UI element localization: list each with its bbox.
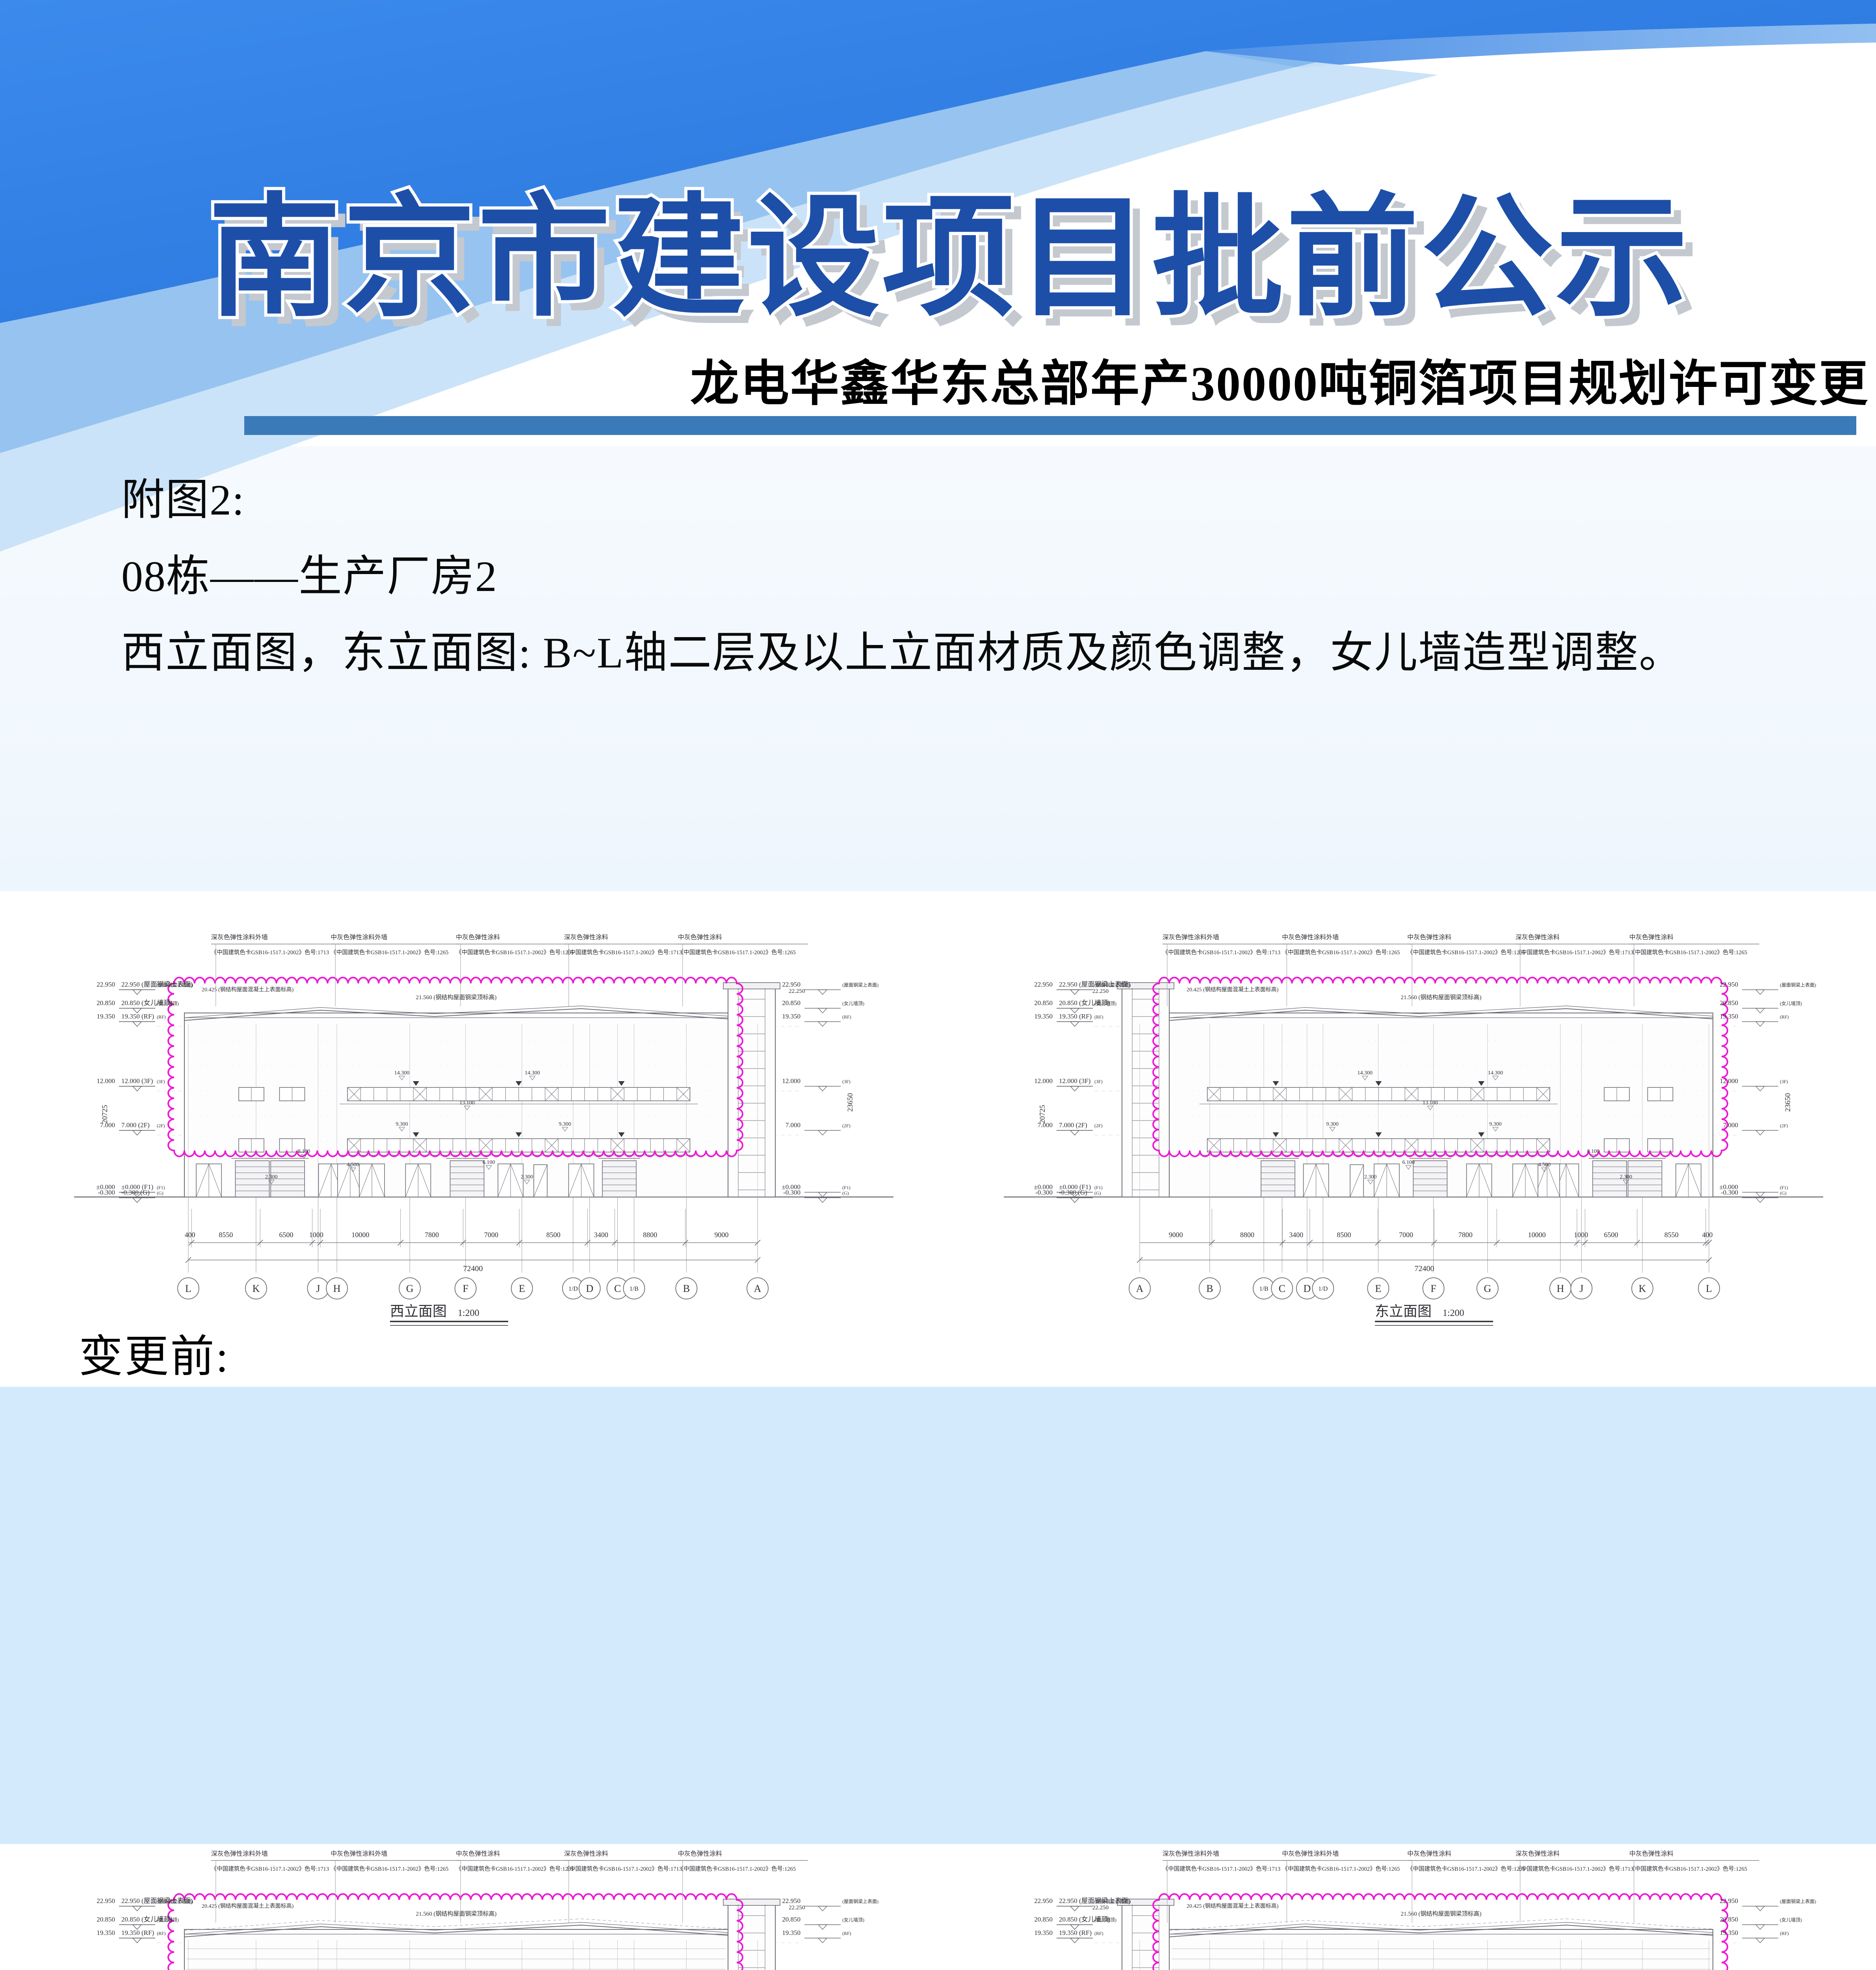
svg-text:(2F): (2F): [842, 1123, 851, 1128]
svg-text:6500: 6500: [1604, 1231, 1618, 1239]
svg-text:19.350 (RF): 19.350 (RF): [121, 1013, 154, 1020]
svg-text:20.425 (钢结构屋面混凝土上表面标高): 20.425 (钢结构屋面混凝土上表面标高): [202, 1903, 294, 1909]
svg-text:14.300: 14.300: [525, 1070, 540, 1076]
svg-text:(G): (G): [842, 1190, 849, 1196]
svg-text:8500: 8500: [1337, 1231, 1351, 1239]
svg-text:(G): (G): [1094, 1190, 1101, 1196]
section-divider-band: [0, 1387, 1876, 1844]
svg-text:H: H: [1557, 1283, 1564, 1294]
svg-text:6500: 6500: [279, 1231, 293, 1239]
svg-text:19.350 (RF): 19.350 (RF): [121, 1929, 154, 1937]
svg-text:《中国建筑色卡GSB16-1517.1-2002》色号:12: 《中国建筑色卡GSB16-1517.1-2002》色号:1265: [1407, 1866, 1525, 1872]
svg-text:(RF): (RF): [1780, 1931, 1789, 1936]
svg-text:(F1): (F1): [1094, 1185, 1103, 1190]
svg-text:14.300: 14.300: [1488, 1070, 1503, 1076]
svg-text:8550: 8550: [219, 1231, 233, 1239]
svg-text:(屋面钢梁上表面): (屋面钢梁上表面): [157, 982, 193, 988]
svg-text:(女儿墙顶): (女儿墙顶): [157, 1917, 179, 1923]
svg-text:20725: 20725: [101, 1105, 109, 1124]
svg-text:中灰色弹性涂料: 中灰色弹性涂料: [678, 1850, 722, 1857]
elevation-canvas-west-before: 22.950 (屋面钢梁上表面)20.850 (女儿墙顶)19.350 (RF)…: [50, 894, 917, 1335]
svg-text:72400: 72400: [1415, 1264, 1434, 1273]
svg-text:L: L: [1706, 1283, 1712, 1294]
svg-text:12.000: 12.000: [97, 1077, 115, 1085]
svg-text:20.850: 20.850: [782, 999, 801, 1007]
svg-text:4.500: 4.500: [1538, 1162, 1551, 1168]
svg-text:19.350: 19.350: [97, 1929, 115, 1937]
svg-text:19.350: 19.350: [782, 1929, 801, 1937]
svg-text:19.350 (RF): 19.350 (RF): [1059, 1929, 1092, 1937]
svg-text:G: G: [406, 1283, 414, 1294]
elevation-canvas-west-after: 22.950 (屋面钢梁上表面)20.850 (女儿墙顶)19.350 (RF)…: [50, 1810, 917, 1970]
svg-text:8500: 8500: [546, 1231, 561, 1239]
svg-text:12.000: 12.000: [1034, 1077, 1053, 1085]
svg-text:2.300: 2.300: [521, 1174, 533, 1180]
svg-text:400: 400: [1702, 1231, 1713, 1239]
svg-text:《中国建筑色卡GSB16-1517.1-2002》色号:17: 《中国建筑色卡GSB16-1517.1-2002》色号:1713: [564, 949, 682, 956]
svg-text:H: H: [333, 1283, 341, 1294]
svg-text:《中国建筑色卡GSB16-1517.1-2002》色号:12: 《中国建筑色卡GSB16-1517.1-2002》色号:1265: [1629, 949, 1747, 956]
svg-text:L: L: [185, 1283, 191, 1294]
svg-text:深灰色弹性涂料: 深灰色弹性涂料: [564, 934, 608, 941]
svg-text:3400: 3400: [594, 1231, 608, 1239]
svg-text:10000: 10000: [351, 1231, 369, 1239]
elevation-drawing-east-after: 22.950 (屋面钢梁上表面)20.850 (女儿墙顶)19.350 (RF)…: [980, 1810, 1847, 1970]
svg-text:(3F): (3F): [157, 1079, 165, 1084]
svg-text:8550: 8550: [1664, 1231, 1679, 1239]
svg-text:深灰色弹性涂料外墙: 深灰色弹性涂料外墙: [1163, 1850, 1219, 1857]
svg-text:深灰色弹性涂料: 深灰色弹性涂料: [564, 1850, 608, 1857]
svg-text:400: 400: [185, 1231, 195, 1239]
svg-text:中灰色弹性涂料外墙: 中灰色弹性涂料外墙: [1282, 1850, 1339, 1857]
svg-text:《中国建筑色卡GSB16-1517.1-2002》色号:12: 《中国建筑色卡GSB16-1517.1-2002》色号:1265: [678, 949, 796, 956]
svg-text:(2F): (2F): [157, 1123, 165, 1128]
poster-subtitle: 龙电华鑫华东总部年产30000吨铜箔项目规划许可变更: [690, 344, 1869, 414]
elevation-drawing-west-after: 22.950 (屋面钢梁上表面)20.850 (女儿墙顶)19.350 (RF)…: [50, 1810, 917, 1970]
svg-text:中灰色弹性涂料: 中灰色弹性涂料: [678, 934, 722, 941]
svg-text:《中国建筑色卡GSB16-1517.1-2002》色号:17: 《中国建筑色卡GSB16-1517.1-2002》色号:1713: [1516, 949, 1633, 956]
svg-text:22.250: 22.250: [1092, 1905, 1109, 1911]
svg-text:22.950: 22.950: [1720, 1897, 1738, 1905]
svg-text:(女儿墙顶): (女儿墙顶): [1780, 1000, 1802, 1006]
svg-text:7000: 7000: [1399, 1231, 1413, 1239]
svg-text:20.850: 20.850: [97, 999, 115, 1007]
svg-text:中灰色弹性涂料: 中灰色弹性涂料: [1407, 1850, 1451, 1857]
svg-text:D: D: [586, 1283, 593, 1294]
poster-page: 南京市建设项目批前公示 南京市建设项目批前公示 龙电华鑫华东总部年产30000吨…: [0, 0, 1876, 1970]
svg-text:14.300: 14.300: [394, 1070, 410, 1076]
svg-text:20725: 20725: [1038, 1105, 1047, 1124]
svg-text:20.850: 20.850: [1034, 1916, 1053, 1923]
svg-text:(RF): (RF): [842, 1014, 851, 1020]
svg-text:22.950: 22.950: [97, 981, 115, 988]
svg-text:《中国建筑色卡GSB16-1517.1-2002》色号:17: 《中国建筑色卡GSB16-1517.1-2002》色号:1713: [211, 949, 329, 956]
svg-text:(3F): (3F): [1094, 1079, 1103, 1084]
svg-text:(F1): (F1): [842, 1185, 851, 1190]
svg-text:(G): (G): [1780, 1190, 1787, 1196]
svg-text:19.350: 19.350: [1720, 1929, 1738, 1937]
svg-text:(RF): (RF): [842, 1931, 851, 1936]
svg-text:(RF): (RF): [1094, 1014, 1103, 1020]
svg-text:19.350: 19.350: [97, 1013, 115, 1020]
svg-text:20.425 (钢结构屋面混凝土上表面标高): 20.425 (钢结构屋面混凝土上表面标高): [202, 986, 294, 993]
svg-text:19.350: 19.350: [1720, 1013, 1738, 1020]
svg-text:深灰色弹性涂料外墙: 深灰色弹性涂料外墙: [211, 1850, 268, 1857]
svg-text:7800: 7800: [425, 1231, 439, 1239]
svg-text:A: A: [754, 1283, 762, 1294]
svg-text:《中国建筑色卡GSB16-1517.1-2002》色号:17: 《中国建筑色卡GSB16-1517.1-2002》色号:1713: [1163, 949, 1280, 956]
svg-text:《中国建筑色卡GSB16-1517.1-2002》色号:12: 《中国建筑色卡GSB16-1517.1-2002》色号:1265: [1407, 949, 1525, 956]
svg-text:6.100: 6.100: [1402, 1160, 1415, 1165]
svg-text:中灰色弹性涂料: 中灰色弹性涂料: [1407, 934, 1451, 941]
svg-text:《中国建筑色卡GSB16-1517.1-2002》色号:12: 《中国建筑色卡GSB16-1517.1-2002》色号:1265: [678, 1866, 796, 1872]
svg-text:(屋面钢梁上表面): (屋面钢梁上表面): [842, 982, 879, 988]
svg-text:22.950: 22.950: [1034, 1897, 1053, 1905]
svg-text:20.850: 20.850: [1720, 1916, 1738, 1923]
svg-text:(RF): (RF): [157, 1014, 166, 1020]
svg-text:K: K: [253, 1283, 260, 1294]
svg-text:(2F): (2F): [1780, 1123, 1788, 1128]
svg-text:J: J: [316, 1283, 320, 1294]
svg-text:中灰色弹性涂料外墙: 中灰色弹性涂料外墙: [331, 1850, 387, 1857]
svg-text:1:200: 1:200: [1443, 1308, 1464, 1318]
svg-text:(女儿墙顶): (女儿墙顶): [1094, 1917, 1116, 1923]
intro-line-1: 附图2:: [121, 464, 245, 527]
svg-text:(女儿墙顶): (女儿墙顶): [842, 1917, 864, 1923]
svg-text:21.560 (钢结构屋面钢梁顶标高): 21.560 (钢结构屋面钢梁顶标高): [416, 1911, 497, 1917]
svg-text:20.850: 20.850: [782, 1916, 801, 1923]
svg-text:E: E: [519, 1283, 525, 1294]
svg-text:23650: 23650: [846, 1093, 854, 1112]
svg-text:1/D: 1/D: [1318, 1286, 1328, 1292]
svg-text:21.560 (钢结构屋面钢梁顶标高): 21.560 (钢结构屋面钢梁顶标高): [1401, 994, 1482, 1001]
svg-text:13.100: 13.100: [1423, 1100, 1438, 1106]
svg-text:19.350: 19.350: [782, 1013, 801, 1020]
svg-text:E: E: [1375, 1283, 1382, 1294]
svg-text:9.300: 9.300: [1326, 1121, 1339, 1127]
svg-text:《中国建筑色卡GSB16-1517.1-2002》色号:17: 《中国建筑色卡GSB16-1517.1-2002》色号:1713: [1516, 1866, 1633, 1872]
svg-text:F: F: [1430, 1283, 1436, 1294]
svg-text:19.350: 19.350: [1034, 1013, 1053, 1020]
svg-text:-0.300: -0.300: [98, 1189, 115, 1196]
svg-text:19.350 (RF): 19.350 (RF): [1059, 1013, 1092, 1020]
svg-text:(G): (G): [157, 1190, 163, 1196]
svg-text:3400: 3400: [1289, 1231, 1303, 1239]
svg-text:20.850: 20.850: [97, 1916, 115, 1923]
svg-text:1:200: 1:200: [458, 1308, 479, 1318]
svg-text:(F1): (F1): [1780, 1185, 1788, 1190]
svg-text:20.850: 20.850: [1034, 999, 1053, 1007]
svg-text:1/D: 1/D: [568, 1286, 578, 1292]
svg-text:7.000 (2F): 7.000 (2F): [1059, 1121, 1087, 1129]
svg-text:《中国建筑色卡GSB16-1517.1-2002》色号:12: 《中国建筑色卡GSB16-1517.1-2002》色号:1265: [331, 1866, 448, 1872]
svg-text:《中国建筑色卡GSB16-1517.1-2002》色号:17: 《中国建筑色卡GSB16-1517.1-2002》色号:1713: [564, 1866, 682, 1872]
svg-text:深灰色弹性涂料外墙: 深灰色弹性涂料外墙: [1163, 934, 1219, 941]
section-label-before: 变更前:: [79, 1321, 230, 1385]
svg-text:20.425 (钢结构屋面混凝土上表面标高): 20.425 (钢结构屋面混凝土上表面标高): [1187, 1903, 1279, 1909]
svg-text:东立面图: 东立面图: [1375, 1303, 1432, 1319]
svg-text:12.000: 12.000: [782, 1077, 801, 1085]
svg-text:-0.300: -0.300: [1035, 1189, 1053, 1196]
svg-text:9000: 9000: [714, 1231, 728, 1239]
svg-text:7.000: 7.000: [1723, 1121, 1738, 1129]
svg-text:《中国建筑色卡GSB16-1517.1-2002》色号:12: 《中国建筑色卡GSB16-1517.1-2002》色号:1265: [1629, 1866, 1747, 1872]
svg-text:22.950: 22.950: [782, 981, 801, 988]
svg-text:中灰色弹性涂料: 中灰色弹性涂料: [456, 1850, 500, 1857]
svg-text:22.950: 22.950: [782, 1897, 801, 1905]
svg-text:中灰色弹性涂料: 中灰色弹性涂料: [1629, 934, 1674, 941]
svg-text:22.250: 22.250: [789, 988, 805, 994]
svg-text:(RF): (RF): [1094, 1931, 1103, 1936]
svg-text:K: K: [1639, 1283, 1646, 1294]
svg-text:22.250: 22.250: [1092, 988, 1109, 994]
svg-text:(女儿墙顶): (女儿墙顶): [842, 1000, 864, 1006]
svg-text:(屋面钢梁上表面): (屋面钢梁上表面): [842, 1898, 879, 1904]
svg-text:23650: 23650: [1784, 1093, 1792, 1112]
svg-text:12.000 (3F): 12.000 (3F): [121, 1077, 153, 1085]
svg-text:C: C: [614, 1283, 621, 1294]
svg-text:14.300: 14.300: [1358, 1070, 1373, 1076]
svg-text:4.500: 4.500: [347, 1162, 359, 1168]
svg-text:《中国建筑色卡GSB16-1517.1-2002》色号:17: 《中国建筑色卡GSB16-1517.1-2002》色号:1713: [211, 1866, 329, 1872]
svg-text:(3F): (3F): [842, 1079, 851, 1084]
svg-text:12.000: 12.000: [1720, 1077, 1738, 1085]
elevation-canvas-east-after: 22.950 (屋面钢梁上表面)20.850 (女儿墙顶)19.350 (RF)…: [980, 1810, 1847, 1970]
elevation-drawing-east-before: 22.950 (屋面钢梁上表面)20.850 (女儿墙顶)19.350 (RF)…: [980, 894, 1847, 1335]
svg-text:19.350: 19.350: [1034, 1929, 1053, 1937]
svg-text:(屋面钢梁上表面): (屋面钢梁上表面): [157, 1898, 193, 1904]
poster-title: 南京市建设项目批前公示: [208, 186, 1690, 332]
svg-text:《中国建筑色卡GSB16-1517.1-2002》色号:12: 《中国建筑色卡GSB16-1517.1-2002》色号:1265: [331, 949, 448, 956]
svg-text:B: B: [683, 1283, 690, 1294]
svg-text:6.100: 6.100: [483, 1160, 495, 1165]
svg-text:22.950: 22.950: [1720, 981, 1738, 988]
svg-text:(RF): (RF): [1780, 1014, 1789, 1020]
intro-line-3: 西立面图，东立面图: B~L轴二层及以上立面材质及颜色调整，女儿墙造型调整。: [121, 617, 1683, 680]
svg-text:7800: 7800: [1458, 1231, 1473, 1239]
svg-text:20.850: 20.850: [1720, 999, 1738, 1007]
svg-text:《中国建筑色卡GSB16-1517.1-2002》色号:12: 《中国建筑色卡GSB16-1517.1-2002》色号:1265: [1282, 1866, 1400, 1872]
svg-text:J: J: [1579, 1283, 1583, 1294]
svg-text:(女儿墙顶): (女儿墙顶): [1094, 1000, 1116, 1006]
svg-text:8.100: 8.100: [298, 1149, 310, 1154]
elevation-canvas-east-before: 22.950 (屋面钢梁上表面)20.850 (女儿墙顶)19.350 (RF)…: [980, 894, 1847, 1335]
svg-text:12.000 (3F): 12.000 (3F): [1059, 1077, 1090, 1085]
svg-text:中灰色弹性涂料: 中灰色弹性涂料: [456, 934, 500, 941]
svg-text:(女儿墙顶): (女儿墙顶): [157, 1000, 179, 1006]
svg-text:72400: 72400: [463, 1264, 483, 1273]
svg-text:9.300: 9.300: [559, 1121, 571, 1127]
svg-text:(屋面钢梁上表面): (屋面钢梁上表面): [1094, 982, 1131, 988]
svg-text:《中国建筑色卡GSB16-1517.1-2002》色号:12: 《中国建筑色卡GSB16-1517.1-2002》色号:1265: [1282, 949, 1400, 956]
svg-text:20.425 (钢结构屋面混凝土上表面标高): 20.425 (钢结构屋面混凝土上表面标高): [1187, 986, 1279, 993]
svg-text:(3F): (3F): [1780, 1079, 1788, 1084]
svg-text:22.950: 22.950: [1034, 981, 1053, 988]
svg-text:B: B: [1206, 1283, 1213, 1294]
svg-text:8800: 8800: [1240, 1231, 1254, 1239]
elevation-drawing-west-before: 22.950 (屋面钢梁上表面)20.850 (女儿墙顶)19.350 (RF)…: [50, 894, 917, 1335]
svg-text:深灰色弹性涂料: 深灰色弹性涂料: [1516, 1850, 1560, 1857]
svg-text:1000: 1000: [309, 1231, 323, 1239]
svg-text:F: F: [462, 1283, 468, 1294]
svg-text:1000: 1000: [1574, 1231, 1588, 1239]
svg-text:2.300: 2.300: [265, 1174, 278, 1180]
svg-text:(屋面钢梁上表面): (屋面钢梁上表面): [1780, 982, 1816, 988]
svg-text:《中国建筑色卡GSB16-1517.1-2002》色号:12: 《中国建筑色卡GSB16-1517.1-2002》色号:1265: [456, 949, 574, 956]
svg-text:(屋面钢梁上表面): (屋面钢梁上表面): [1094, 1898, 1131, 1904]
svg-text:深灰色弹性涂料外墙: 深灰色弹性涂料外墙: [211, 934, 268, 941]
svg-text:8800: 8800: [643, 1231, 657, 1239]
svg-text:22.950: 22.950: [97, 1897, 115, 1905]
svg-text:9.300: 9.300: [1489, 1121, 1502, 1127]
subtitle-underline-bar: [244, 416, 1856, 435]
svg-text:-0.300: -0.300: [1721, 1189, 1738, 1196]
svg-text:D: D: [1303, 1283, 1311, 1294]
svg-text:21.560 (钢结构屋面钢梁顶标高): 21.560 (钢结构屋面钢梁顶标高): [1401, 1911, 1482, 1917]
svg-text:中灰色弹性涂料外墙: 中灰色弹性涂料外墙: [331, 934, 387, 941]
svg-text:(屋面钢梁上表面): (屋面钢梁上表面): [1780, 1898, 1816, 1904]
svg-text:21.560 (钢结构屋面钢梁顶标高): 21.560 (钢结构屋面钢梁顶标高): [416, 994, 497, 1001]
svg-text:(RF): (RF): [157, 1931, 166, 1936]
poster-title-graphic: 南京市建设项目批前公示 南京市建设项目批前公示: [0, 130, 1876, 374]
svg-text:7.000 (2F): 7.000 (2F): [121, 1121, 150, 1129]
svg-text:(女儿墙顶): (女儿墙顶): [1780, 1917, 1802, 1923]
intro-line-2: 08栋——生产厂房2: [121, 541, 498, 604]
svg-text:中灰色弹性涂料外墙: 中灰色弹性涂料外墙: [1282, 934, 1339, 941]
svg-text:西立面图: 西立面图: [390, 1303, 447, 1319]
svg-text:13.100: 13.100: [459, 1100, 475, 1106]
svg-text:9.300: 9.300: [396, 1121, 408, 1127]
svg-text:C: C: [1279, 1283, 1285, 1294]
svg-text:8.100: 8.100: [1587, 1149, 1600, 1154]
svg-text:22.250: 22.250: [789, 1905, 805, 1911]
svg-text:(F1): (F1): [157, 1185, 165, 1190]
svg-text:(2F): (2F): [1094, 1123, 1103, 1128]
svg-text:中灰色弹性涂料: 中灰色弹性涂料: [1629, 1850, 1674, 1857]
svg-text:7.000: 7.000: [786, 1121, 801, 1129]
svg-text:《中国建筑色卡GSB16-1517.1-2002》色号:12: 《中国建筑色卡GSB16-1517.1-2002》色号:1265: [456, 1866, 574, 1872]
svg-text:2.300: 2.300: [1364, 1174, 1377, 1180]
svg-text:深灰色弹性涂料: 深灰色弹性涂料: [1516, 934, 1560, 941]
svg-text:7000: 7000: [484, 1231, 498, 1239]
svg-text:1/B: 1/B: [1259, 1286, 1268, 1292]
svg-text:9000: 9000: [1169, 1231, 1183, 1239]
svg-text:10000: 10000: [1528, 1231, 1546, 1239]
svg-text:A: A: [1136, 1283, 1144, 1294]
svg-text:G: G: [1484, 1283, 1492, 1294]
svg-text:2.300: 2.300: [1620, 1174, 1632, 1180]
svg-text:《中国建筑色卡GSB16-1517.1-2002》色号:17: 《中国建筑色卡GSB16-1517.1-2002》色号:1713: [1163, 1866, 1280, 1872]
svg-text:1/B: 1/B: [630, 1286, 639, 1292]
svg-text:-0.300: -0.300: [783, 1189, 801, 1196]
